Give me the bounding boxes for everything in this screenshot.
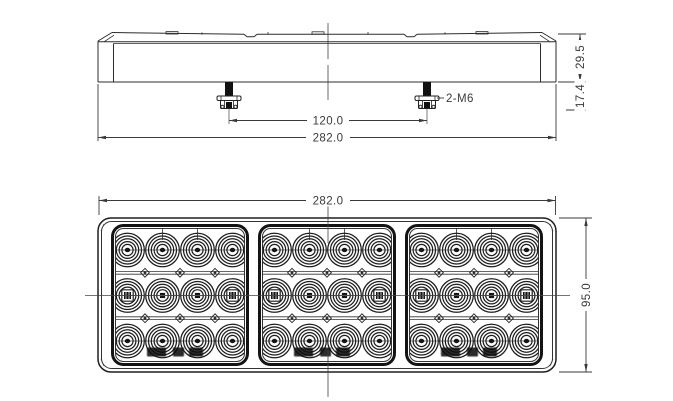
lamp-profile-outline bbox=[98, 32, 556, 82]
dim-label-stud-length: 17.4 bbox=[575, 84, 587, 108]
lens-diamond bbox=[470, 314, 479, 323]
lens-diamond bbox=[288, 314, 297, 323]
lens-diamond bbox=[435, 314, 444, 323]
led-optic bbox=[328, 233, 362, 267]
bolt-callout-label: 2-M6 bbox=[446, 93, 474, 105]
lens-diamond bbox=[358, 314, 367, 323]
led-lens-grid bbox=[400, 229, 549, 358]
lens-diamond bbox=[211, 314, 220, 323]
dim-label-overall-width-front: 282.0 bbox=[313, 196, 344, 208]
lens-diamond bbox=[358, 268, 367, 277]
mounting-bolt bbox=[415, 82, 439, 124]
led-optic bbox=[181, 233, 215, 267]
lens-diamond bbox=[176, 268, 185, 277]
led-lamp-drawing: 120.0 282.0 29.5 17.4 bbox=[0, 0, 673, 401]
side-elevation-view: 120.0 282.0 29.5 17.4 bbox=[98, 23, 587, 145]
dim-label-overall-width-top: 282.0 bbox=[313, 133, 344, 145]
lens-diamond bbox=[505, 268, 514, 277]
molded-logo-marks bbox=[294, 348, 350, 357]
dim-bolt-spacing: 120.0 bbox=[229, 115, 427, 128]
lens-section bbox=[400, 226, 549, 365]
lens-diamond bbox=[211, 268, 220, 277]
lens-diamond bbox=[435, 268, 444, 277]
dim-label-total-height: 29.5 bbox=[575, 45, 587, 69]
led-lens-grid bbox=[106, 229, 255, 358]
lens-sections bbox=[106, 226, 549, 365]
lens-section bbox=[106, 226, 255, 365]
lens-diamond bbox=[141, 268, 150, 277]
dim-overall-height: 95.0 bbox=[559, 218, 593, 372]
lens-diamond bbox=[323, 268, 332, 277]
lens-diamond bbox=[323, 314, 332, 323]
mounting-bolt bbox=[217, 82, 241, 124]
dim-overall-width-top: 282.0 bbox=[98, 132, 556, 145]
led-optic bbox=[146, 233, 180, 267]
front-face-view: 282.0 95.0 bbox=[85, 195, 593, 398]
dim-label-bolt-spacing: 120.0 bbox=[313, 116, 344, 128]
lens-diamond bbox=[176, 314, 185, 323]
lens-diamond bbox=[141, 314, 150, 323]
molded-logo-marks bbox=[147, 348, 203, 357]
technical-drawing-canvas: 120.0 282.0 29.5 17.4 bbox=[0, 0, 673, 401]
dim-overall-width-front: 282.0 bbox=[99, 195, 556, 216]
led-lens-grid bbox=[253, 229, 402, 358]
dim-height-stack: 29.5 17.4 bbox=[575, 34, 588, 113]
led-optic bbox=[293, 233, 327, 267]
molded-logo-marks bbox=[441, 348, 497, 357]
lens-diamond bbox=[505, 314, 514, 323]
dim-label-overall-height: 95.0 bbox=[581, 283, 593, 307]
led-optic bbox=[440, 233, 474, 267]
lens-diamond bbox=[288, 268, 297, 277]
lens-diamond bbox=[470, 268, 479, 277]
led-optic bbox=[475, 233, 509, 267]
bolt-callout: 2-M6 bbox=[437, 93, 474, 105]
lens-section bbox=[253, 226, 402, 365]
